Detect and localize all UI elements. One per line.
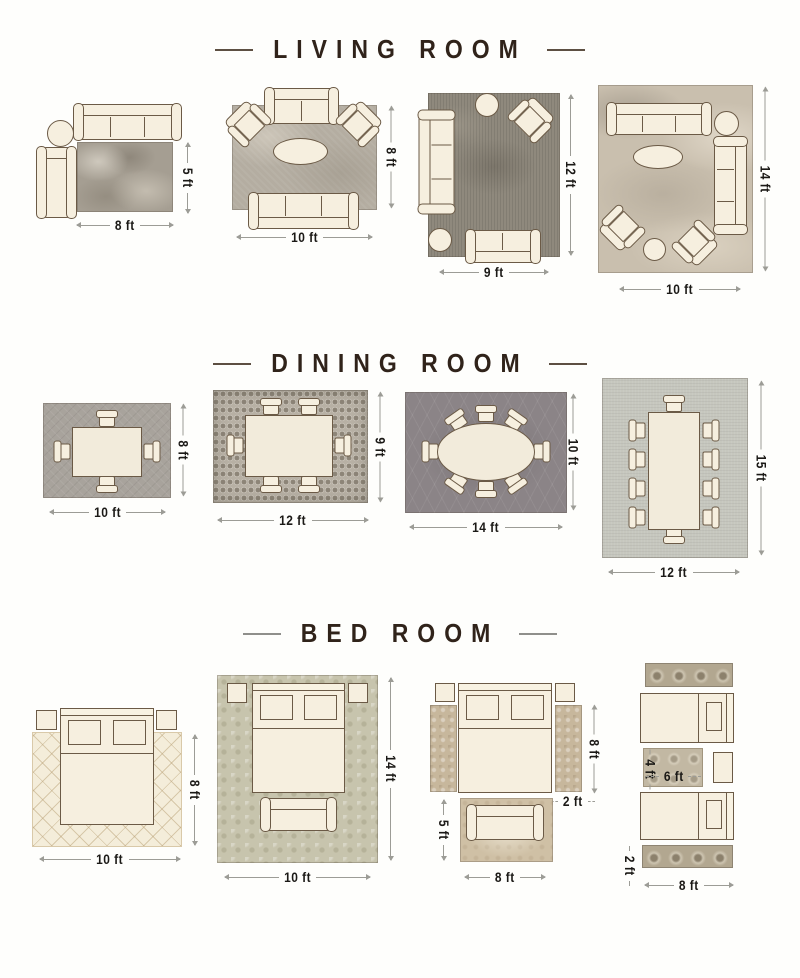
bed: [252, 683, 345, 793]
title-dash: [549, 363, 587, 365]
dimension-runner-width: 2 ft: [551, 794, 595, 808]
pillow: [706, 702, 722, 732]
dining-chair: [298, 476, 320, 493]
dining-table: [648, 412, 700, 530]
title-dash: [547, 49, 585, 51]
dimension-foot-rug-width: 8 ft: [465, 870, 545, 884]
dining-chair: [629, 420, 646, 442]
layout-bedroom-twin-runners: 4 ft 6 ft 2 ft 8 ft: [618, 650, 793, 895]
dimension-width: 8 ft: [77, 218, 173, 232]
dimension-width: 12 ft: [609, 565, 739, 579]
section-title-text: BED ROOM: [301, 618, 500, 648]
dimension-height: 9 ft: [374, 393, 388, 502]
nightstand: [713, 752, 733, 783]
dining-chair: [227, 435, 244, 457]
dining-chair: [54, 441, 71, 463]
dining-chair: [629, 449, 646, 471]
layout-living-8x5: 5 ft 8 ft: [30, 85, 210, 240]
dimension-height: 14 ft: [759, 88, 773, 271]
dining-chair: [422, 441, 439, 463]
twin-bed: [640, 792, 734, 840]
round-side-table: [47, 120, 74, 147]
three-seat-sofa: [608, 103, 710, 135]
three-seat-sofa: [250, 193, 357, 229]
layout-bedroom-10x8: 8 ft 10 ft: [25, 700, 210, 865]
twin-bed: [640, 693, 734, 743]
round-side-table: [475, 93, 499, 117]
nightstand: [227, 683, 247, 703]
dining-chair: [629, 478, 646, 500]
layout-living-10x14: 14 ft 10 ft: [590, 70, 785, 300]
title-dash: [213, 363, 251, 365]
dining-chair: [629, 507, 646, 529]
nightstand: [348, 683, 368, 703]
layout-living-10x8: 8 ft 10 ft: [215, 80, 400, 250]
title-dash: [519, 633, 557, 635]
dining-chair: [703, 478, 720, 500]
dimension-height: 5 ft: [181, 143, 195, 213]
three-seat-sofa: [714, 138, 747, 233]
pillow: [706, 800, 722, 829]
dimension-height: 8 ft: [188, 735, 202, 845]
oval-coffee-table: [633, 145, 683, 169]
dimension-width: 10 ft: [40, 852, 180, 866]
title-dash: [243, 633, 281, 635]
chaise: [38, 147, 75, 218]
dimension-foot-rug-height: 5 ft: [437, 800, 451, 860]
dimension-height: 10 ft: [567, 395, 581, 510]
dining-chair: [260, 398, 282, 415]
runner-rug: [555, 705, 582, 792]
bed: [60, 708, 154, 825]
three-seat-sofa: [418, 111, 454, 212]
pillow: [260, 695, 293, 720]
dimension-width: 14 ft: [410, 520, 562, 534]
round-side-table: [643, 238, 666, 261]
oval-dining-table: [437, 423, 535, 481]
dimension-width: 12 ft: [218, 513, 368, 527]
dining-chair: [703, 507, 720, 529]
dining-table: [72, 427, 142, 477]
dimension-width: 10 ft: [225, 870, 370, 884]
dimension-height: 12 ft: [564, 95, 578, 255]
runner-rug: [430, 705, 457, 792]
dimension-height: 8 ft: [385, 107, 399, 208]
oval-coffee-table: [273, 138, 328, 165]
loveseat: [266, 88, 337, 124]
dimension-width: 10 ft: [50, 505, 165, 519]
bench: [262, 798, 335, 831]
bed: [458, 683, 552, 793]
section-title-bed-room: BED ROOM: [0, 620, 800, 647]
dining-chair: [96, 410, 118, 427]
section-title-text: DINING ROOM: [271, 348, 528, 378]
pillow: [68, 720, 101, 745]
dining-chair: [663, 395, 685, 412]
nightstand: [435, 683, 455, 702]
pillow: [113, 720, 146, 745]
runner-rug: [642, 845, 733, 868]
dining-chair: [335, 435, 352, 457]
dining-chair: [534, 441, 551, 463]
layout-dining-14x10: 10 ft 14 ft: [397, 385, 582, 535]
rug-size-guide-infographic: LIVING ROOM 5 ft 8 ft 8 ft 10 ft: [0, 0, 800, 978]
area-rug: [77, 142, 173, 212]
dining-chair: [703, 420, 720, 442]
section-title-text: LIVING ROOM: [273, 34, 527, 64]
layout-dining-10x8: 8 ft 10 ft: [35, 395, 195, 525]
dimension-width: 10 ft: [620, 282, 740, 296]
title-dash: [215, 49, 253, 51]
dining-chair: [475, 405, 497, 422]
bench: [468, 805, 542, 840]
dimension-runner-height: 8 ft: [588, 706, 602, 793]
nightstand: [156, 710, 177, 730]
layout-bedroom-runners: 8 ft 2 ft 5 ft 8 ft: [425, 672, 605, 890]
nightstand: [555, 683, 575, 702]
dimension-width: 9 ft: [440, 265, 548, 279]
pillow: [304, 695, 337, 720]
dimension-height: 14 ft: [384, 678, 398, 860]
dimension-width: 10 ft: [237, 230, 372, 244]
layout-dining-12x9: 9 ft 12 ft: [205, 385, 390, 535]
dining-chair: [298, 398, 320, 415]
pillow: [466, 695, 499, 720]
dining-table: [245, 415, 333, 477]
nightstand: [36, 710, 57, 730]
dimension-runner-width: 8 ft: [645, 878, 733, 892]
round-side-table: [428, 228, 452, 252]
dining-chair: [260, 476, 282, 493]
dining-chair: [96, 476, 118, 493]
section-title-living-room: LIVING ROOM: [0, 36, 800, 63]
loveseat: [467, 230, 539, 263]
dimension-runner-height: 2 ft: [623, 846, 637, 868]
dimension-height: 15 ft: [755, 382, 769, 555]
dining-chair: [475, 481, 497, 498]
dining-chair: [703, 449, 720, 471]
three-seat-sofa: [75, 104, 180, 140]
layout-bedroom-10x14: 14 ft 10 ft: [210, 665, 405, 885]
dimension-mid-rug-width: 6 ft: [646, 769, 701, 783]
pillow: [511, 695, 544, 720]
layout-dining-12x15: 15 ft 12 ft: [594, 372, 784, 587]
dining-chair: [144, 441, 161, 463]
round-side-table: [714, 111, 739, 136]
dimension-height: 8 ft: [177, 405, 191, 496]
runner-rug: [645, 663, 733, 687]
layout-living-9x12: 12 ft 9 ft: [410, 80, 585, 285]
